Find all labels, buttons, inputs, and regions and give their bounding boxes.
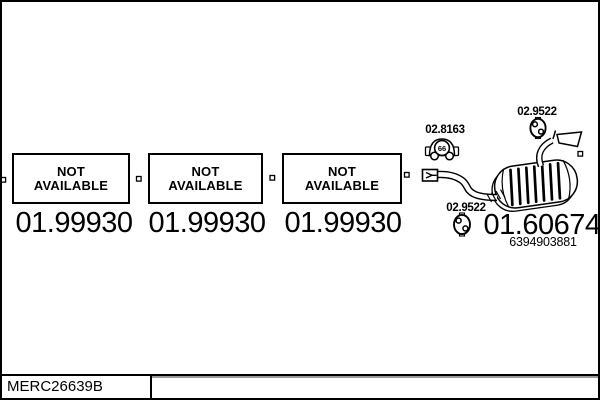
- connector-dot: [270, 176, 275, 181]
- clamp-bottom-icon: [454, 213, 470, 236]
- part-number[interactable]: 01.99930: [280, 209, 406, 238]
- placeholder-box: NOT AVAILABLE: [12, 153, 130, 204]
- not-available-line1: NOT: [191, 165, 219, 179]
- placeholder-box: NOT AVAILABLE: [148, 153, 263, 204]
- part-number[interactable]: 01.99930: [11, 209, 137, 238]
- not-available-line2: AVAILABLE: [168, 179, 242, 193]
- not-available-line2: AVAILABLE: [34, 179, 108, 193]
- connector-dot: [405, 173, 410, 178]
- connector-dot: [1, 178, 6, 183]
- diagram-code: MERC26639B: [2, 374, 152, 398]
- not-available-line1: NOT: [328, 165, 356, 179]
- placeholder-box: NOT AVAILABLE: [282, 153, 402, 204]
- exhaust-system-diagram: 66 NOT AVAILABLE NOT AVAILABLE NOT AVAIL…: [0, 0, 600, 400]
- clamp-bottom-ref-label: 02.9522: [431, 203, 501, 215]
- inlet-flange-icon: [423, 170, 438, 182]
- not-available-line2: AVAILABLE: [305, 179, 379, 193]
- front-pipe: [438, 174, 498, 197]
- part-number[interactable]: 01.99930: [144, 209, 270, 238]
- oem-number: 6394903881: [493, 236, 593, 249]
- mount-ref-label: 02.8163: [410, 125, 480, 137]
- outlet-flange: [557, 132, 582, 147]
- footer-divider-shadow: [150, 376, 598, 378]
- rubber-mount-icon: 66: [426, 139, 459, 160]
- not-available-line1: NOT: [57, 165, 85, 179]
- mount-icon-text: 66: [438, 144, 446, 153]
- clamp-top-ref-label: 02.9522: [502, 107, 572, 119]
- connector-dot: [137, 177, 142, 182]
- connector-dot: [578, 152, 583, 157]
- clamp-top-icon: [530, 118, 545, 139]
- silencer-body: [489, 157, 580, 214]
